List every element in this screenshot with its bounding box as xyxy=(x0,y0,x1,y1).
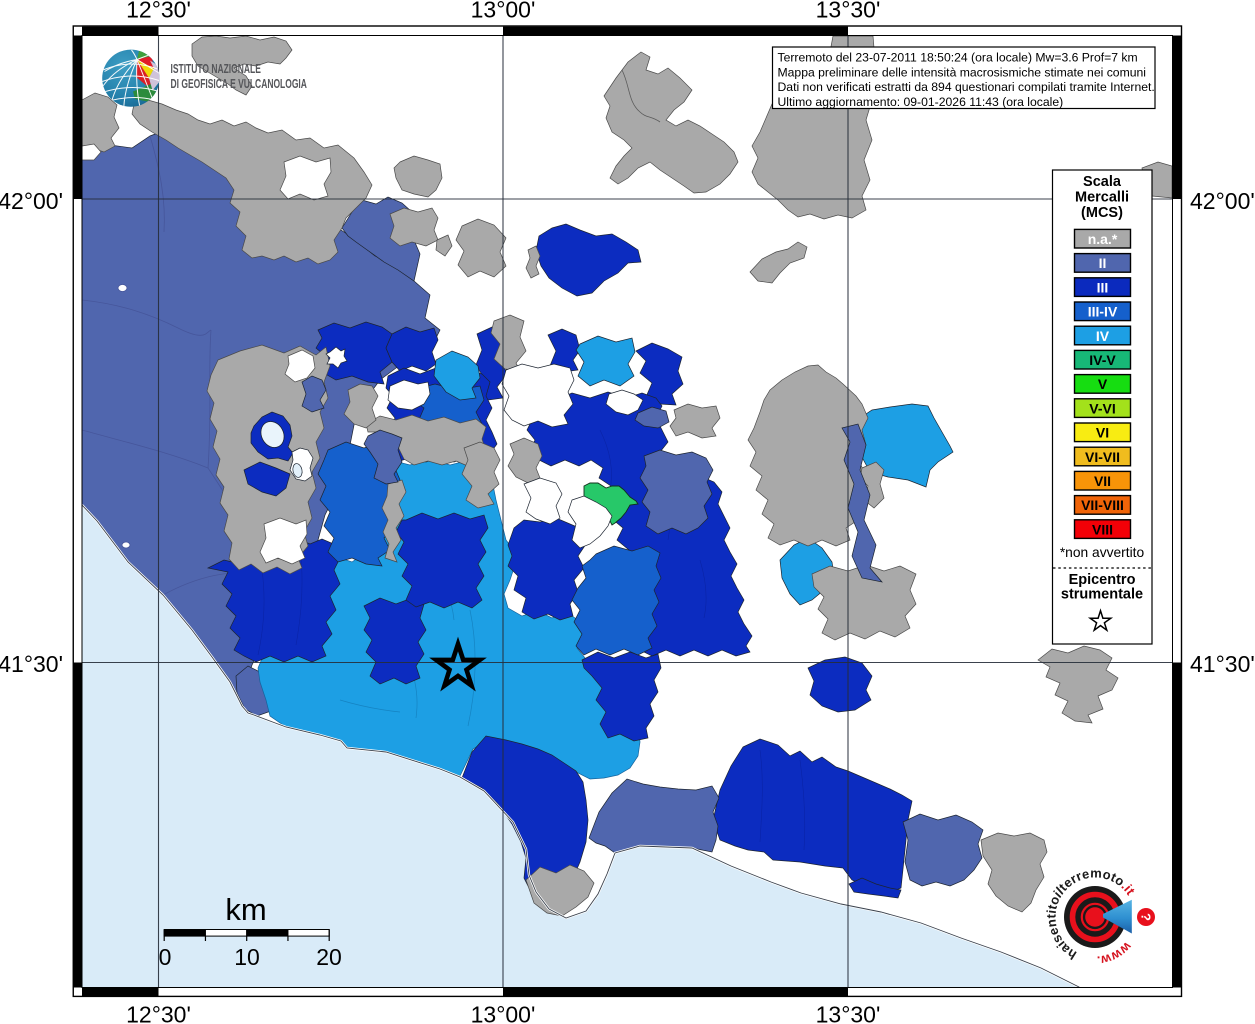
svg-text:?: ? xyxy=(1139,913,1154,921)
svg-text:III-IV: III-IV xyxy=(1088,304,1118,320)
svg-text:10: 10 xyxy=(234,944,260,970)
svg-text:Terremoto del 23-07-2011 18:50: Terremoto del 23-07-2011 18:50:24 (ora l… xyxy=(778,51,1138,65)
svg-text:(MCS): (MCS) xyxy=(1081,205,1123,221)
svg-text:V: V xyxy=(1098,376,1108,392)
svg-text:13°30': 13°30' xyxy=(816,1002,881,1024)
svg-text:VII-VIII: VII-VIII xyxy=(1081,497,1124,513)
svg-text:V-VI: V-VI xyxy=(1089,400,1115,416)
svg-text:n.a.*: n.a.* xyxy=(1088,231,1118,247)
svg-text:Ultimo aggiornamento: 09-01-20: Ultimo aggiornamento: 09-01-2026 11:43 (… xyxy=(778,95,1064,109)
svg-text:DI GEOFISICA E VULCANOLOGIA: DI GEOFISICA E VULCANOLOGIA xyxy=(171,77,308,91)
svg-text:13°00': 13°00' xyxy=(471,1002,536,1024)
svg-text:km: km xyxy=(225,892,266,927)
svg-text:IV: IV xyxy=(1096,328,1110,344)
svg-text:VI-VII: VI-VII xyxy=(1085,449,1120,465)
svg-text:ISTITUTO NAZIONALE: ISTITUTO NAZIONALE xyxy=(171,63,261,77)
svg-text:41°30': 41°30' xyxy=(0,651,63,677)
svg-text:0: 0 xyxy=(159,944,172,970)
svg-text:IV-V: IV-V xyxy=(1089,352,1116,368)
svg-text:Scala: Scala xyxy=(1083,174,1122,190)
svg-text:VIII: VIII xyxy=(1092,521,1113,537)
svg-text:Mappa preliminare delle intens: Mappa preliminare delle intensità macros… xyxy=(778,65,1147,79)
svg-text:20: 20 xyxy=(316,944,342,970)
svg-text:VI: VI xyxy=(1096,425,1109,441)
svg-text:III: III xyxy=(1097,279,1109,295)
svg-text:VII: VII xyxy=(1094,473,1111,489)
svg-text:*non avvertito: *non avvertito xyxy=(1060,545,1145,560)
svg-text:II: II xyxy=(1099,255,1107,271)
svg-text:Mercalli: Mercalli xyxy=(1075,190,1129,206)
svg-text:Dati non verificati estratti d: Dati non verificati estratti da 894 ques… xyxy=(778,80,1155,94)
svg-text:12°30': 12°30' xyxy=(126,1002,191,1024)
svg-text:strumentale: strumentale xyxy=(1061,587,1143,603)
svg-text:42°00': 42°00' xyxy=(1190,188,1255,214)
svg-text:41°30': 41°30' xyxy=(1190,651,1255,677)
svg-text:13°30': 13°30' xyxy=(816,0,881,23)
svg-text:42°00': 42°00' xyxy=(0,188,63,214)
svg-text:12°30': 12°30' xyxy=(126,0,191,23)
svg-text:13°00': 13°00' xyxy=(471,0,536,23)
